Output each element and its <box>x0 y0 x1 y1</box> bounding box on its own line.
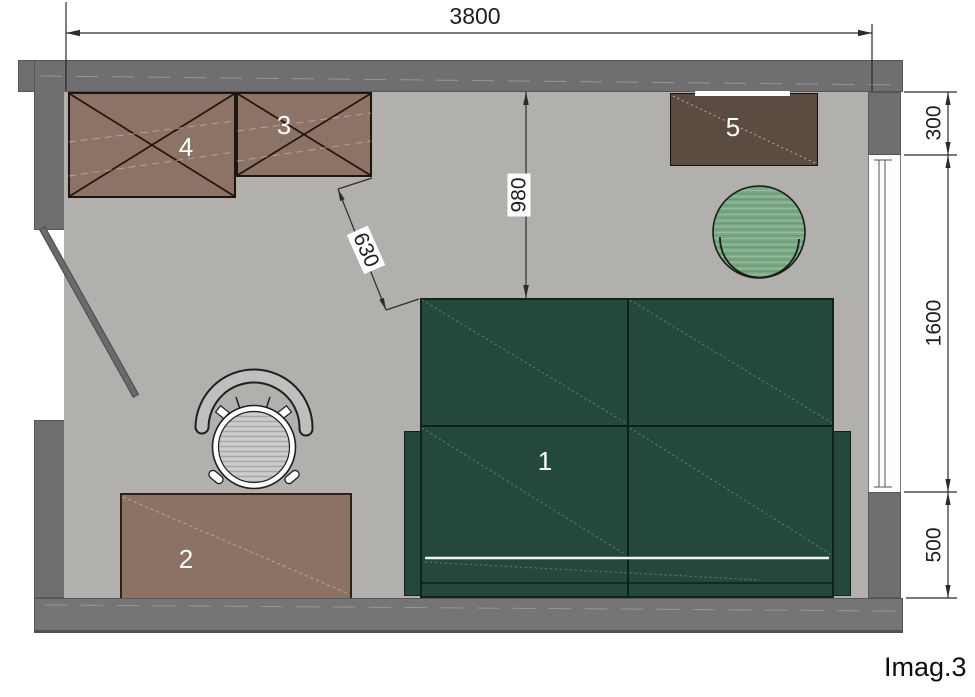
dimension-total-width: 3800 <box>420 6 530 27</box>
dimension-window: 1600 <box>924 300 945 347</box>
window <box>868 155 901 492</box>
desk-2 <box>120 493 352 598</box>
dimension-right-bottom: 500 <box>924 527 945 562</box>
sideboard-handle <box>695 91 790 96</box>
bed-label: 1 <box>531 448 559 474</box>
wall-bottom <box>34 598 903 633</box>
wall-left-upper <box>34 60 66 230</box>
wardrobe-4 <box>68 92 236 198</box>
wall-right-lower <box>868 492 901 598</box>
wall-right-upper <box>868 92 901 155</box>
wardrobe-3 <box>236 92 372 177</box>
bed-side-rail-left <box>404 431 421 596</box>
wardrobe-small-label: 3 <box>270 112 298 138</box>
bed-1 <box>420 298 834 598</box>
floor-plan: 1 2 3 4 5 3800 300 1600 500 980 630 Imag… <box>0 0 975 697</box>
dimension-wall-to-bed: 980 <box>508 173 531 216</box>
image-caption: Imag.3 <box>884 652 967 683</box>
sideboard-label: 5 <box>719 114 747 140</box>
wardrobe-large-label: 4 <box>172 134 200 160</box>
wall-left-lower <box>34 420 66 598</box>
wall-top <box>18 60 903 92</box>
desk-label: 2 <box>172 546 200 572</box>
bed-side-rail-right <box>833 431 851 596</box>
dimension-right-top: 300 <box>924 105 945 140</box>
